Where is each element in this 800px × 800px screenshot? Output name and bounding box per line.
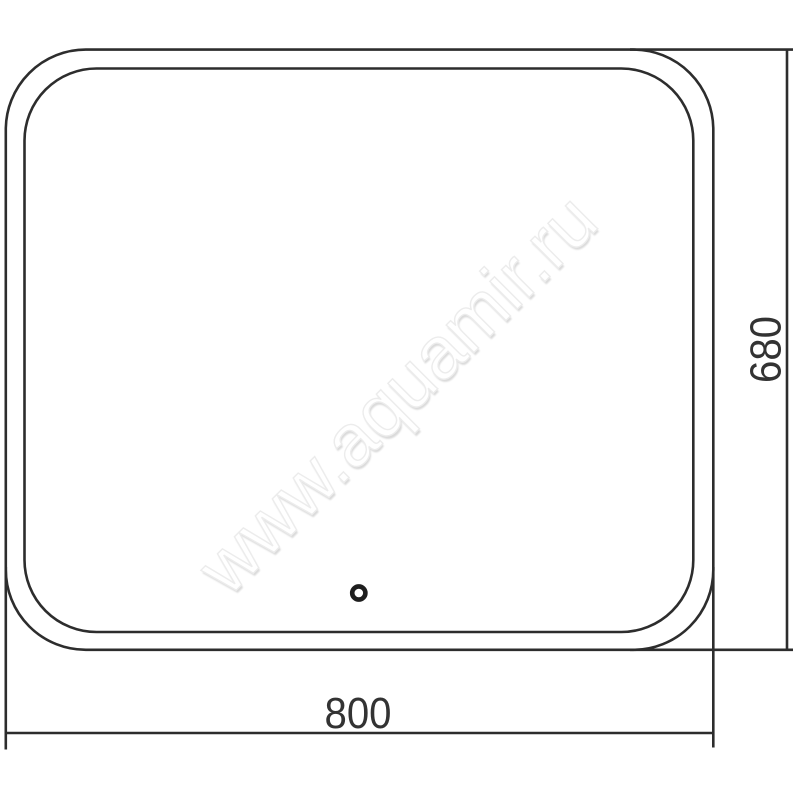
svg-text:680: 680 [742, 316, 791, 383]
svg-text:800: 800 [325, 689, 392, 738]
svg-text:www.aquamir.ru: www.aquamir.ru [181, 178, 613, 610]
